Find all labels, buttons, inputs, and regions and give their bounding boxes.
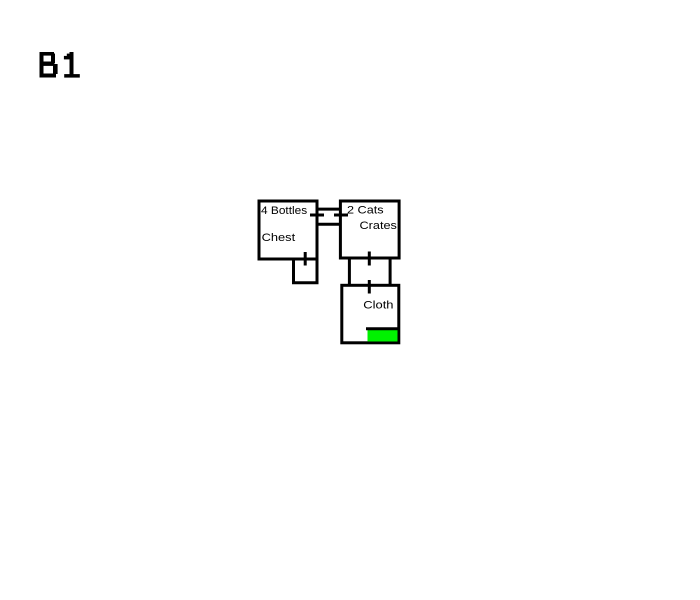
svg-text:Crates: Crates [360, 220, 397, 232]
svg-text:2 Cats: 2 Cats [347, 205, 384, 217]
svg-text:4 Bottles: 4 Bottles [261, 205, 307, 217]
svg-text:Cloth: Cloth [363, 300, 393, 312]
svg-text:Chest: Chest [262, 232, 296, 244]
